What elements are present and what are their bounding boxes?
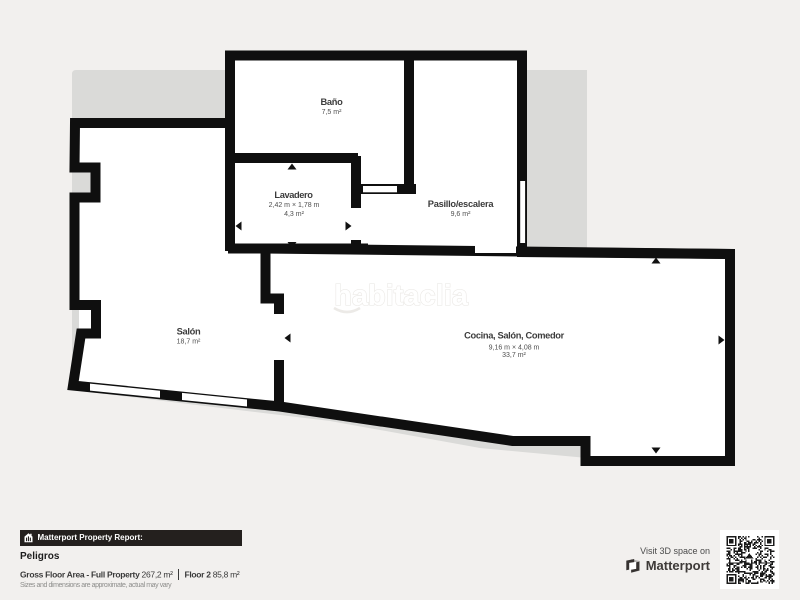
svg-text:Cocina, Salón, Comedor: Cocina, Salón, Comedor (464, 331, 564, 341)
svg-text:33,7 m²: 33,7 m² (502, 352, 526, 359)
svg-text:7,5 m²: 7,5 m² (322, 109, 343, 116)
svg-text:habitaclia: habitaclia (334, 280, 469, 312)
svg-text:9,6 m²: 9,6 m² (451, 211, 472, 218)
svg-text:Baño: Baño (320, 97, 343, 107)
svg-text:18,7 m²: 18,7 m² (177, 339, 201, 346)
svg-text:9,16 m × 4,08 m: 9,16 m × 4,08 m (489, 345, 540, 352)
svg-text:Salón: Salón (177, 327, 201, 337)
svg-text:Lavadero: Lavadero (274, 190, 313, 200)
svg-text:2,42 m × 1,78 m: 2,42 m × 1,78 m (269, 202, 320, 209)
svg-text:Pasillo/escalera: Pasillo/escalera (428, 199, 495, 209)
svg-text:4,3 m²: 4,3 m² (284, 211, 305, 218)
